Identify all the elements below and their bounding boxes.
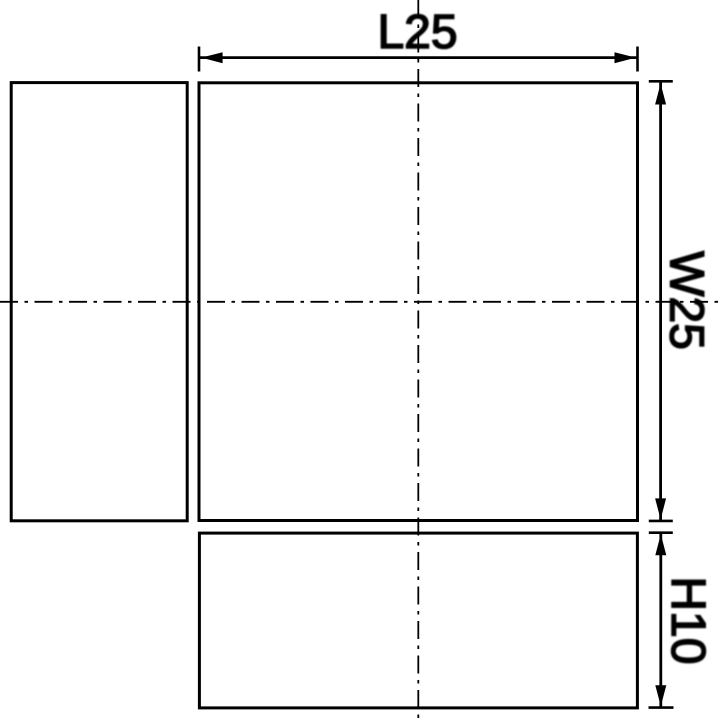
svg-text:H10: H10 bbox=[661, 576, 714, 664]
svg-text:W25: W25 bbox=[660, 251, 713, 350]
svg-text:L25: L25 bbox=[377, 6, 457, 59]
